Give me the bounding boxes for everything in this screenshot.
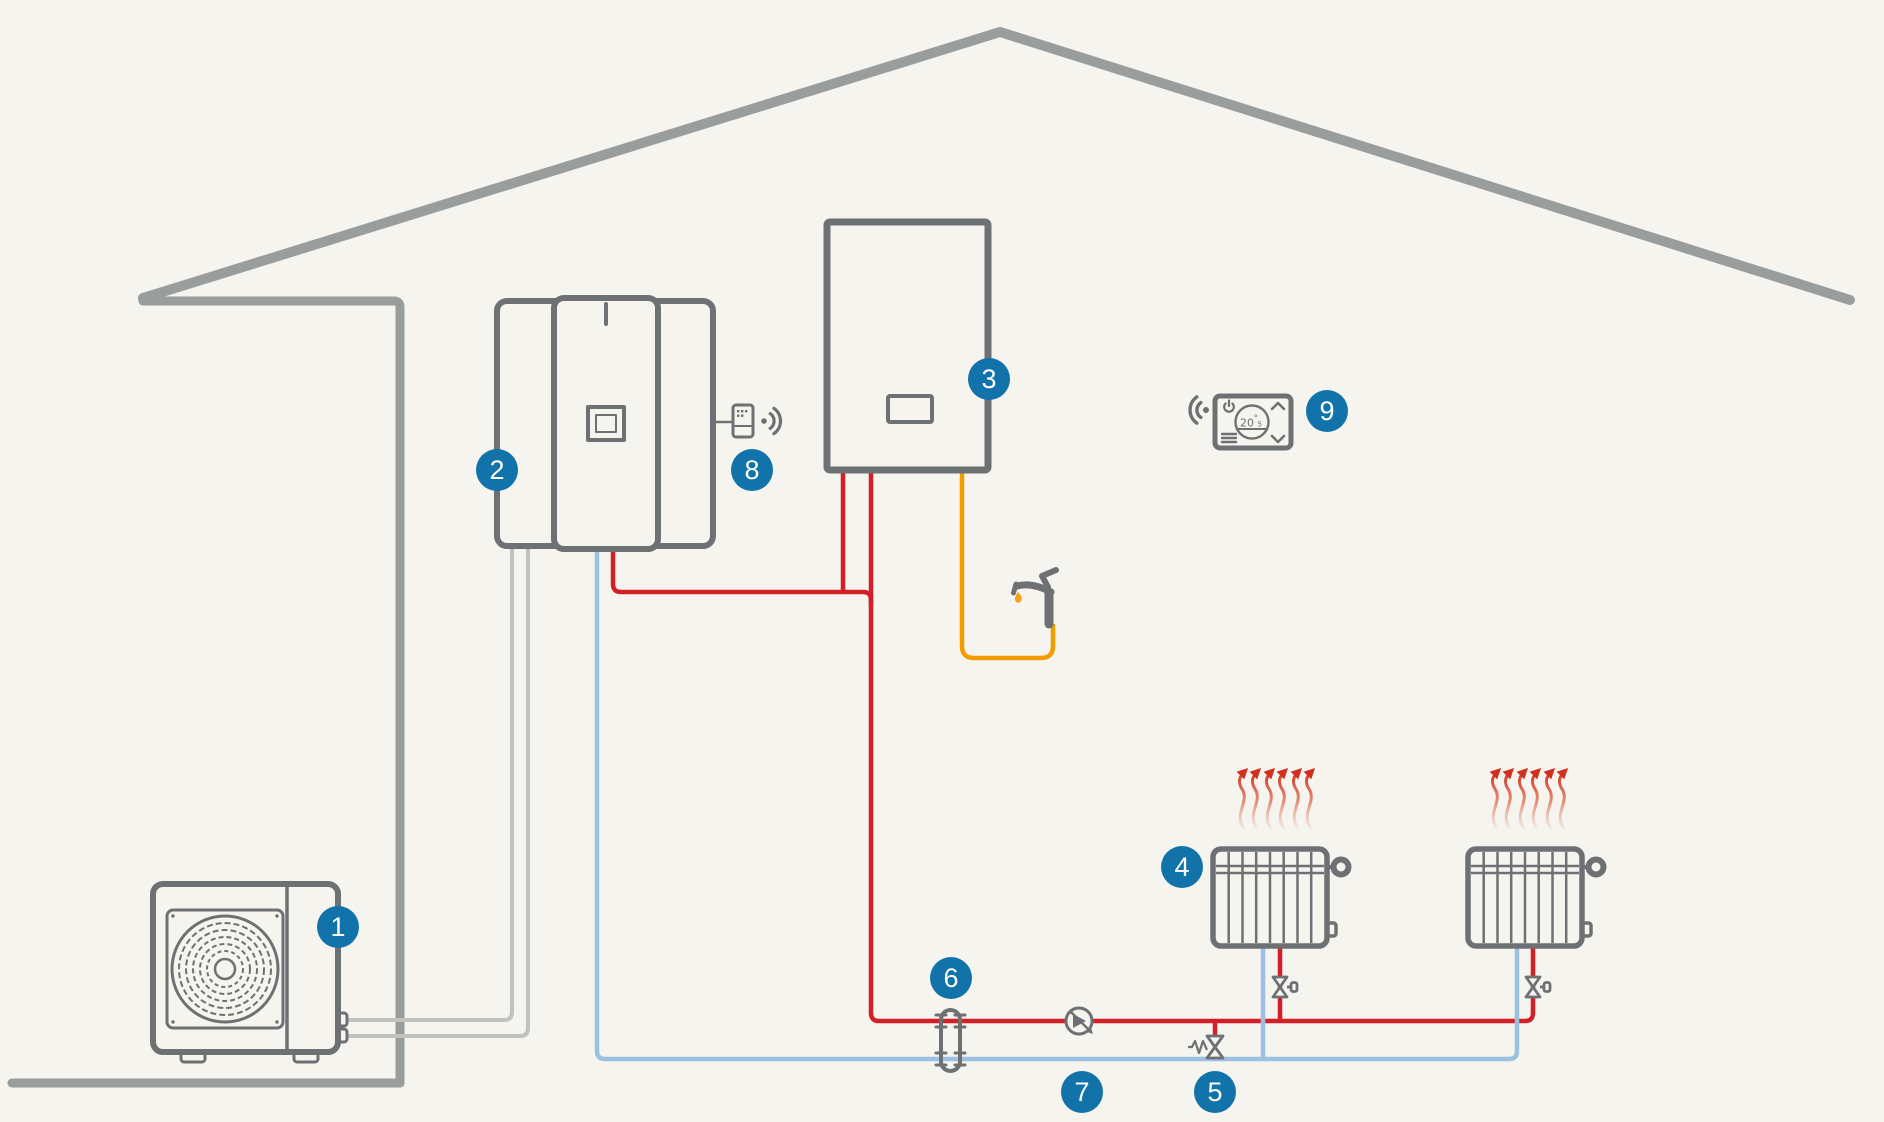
diagram-canvas: 20 ° 5 [0,0,1884,1122]
overflow-valve-icon [1188,1036,1223,1058]
hot-water-pipe [962,466,1053,658]
indoor-unit-front-panel [554,298,658,549]
heating-return-pipe [597,549,1517,1059]
wireless-module-icon [713,405,781,437]
heat-waves-icon [1239,771,1312,827]
badge-8[interactable]: 8 [731,449,773,491]
heat-waves-icon [1492,771,1565,827]
indoor-unit [497,298,713,549]
radiator-knob [1589,860,1604,875]
wifi-waves-icon [761,408,780,433]
outdoor-unit [153,884,347,1062]
radiator-valve-icon [1273,977,1297,997]
thermostat-temperature: 20 [1240,417,1254,430]
thermostat: 20 ° 5 [1190,396,1291,448]
wifi-waves-icon [1190,397,1209,423]
roof-line [143,32,1850,300]
heating-system-diagram: 20 ° 5 1 2 3 4 5 6 7 8 9 [0,0,1884,1122]
refrigerant-pipes [347,549,528,1036]
badge-4[interactable]: 4 [1161,846,1203,888]
faucet-icon [1014,570,1057,624]
radiator [1468,771,1604,946]
badge-3[interactable]: 3 [968,358,1010,400]
boiler-body [827,222,988,470]
water-drop-icon [1015,592,1022,603]
badge-1[interactable]: 1 [317,906,359,948]
boiler [827,222,988,470]
pump-icon [1066,1008,1093,1034]
badge-6[interactable]: 6 [930,957,972,999]
badge-2[interactable]: 2 [476,449,518,491]
radiator-knob [1334,860,1349,875]
badge-5[interactable]: 5 [1194,1071,1236,1113]
badge-9[interactable]: 9 [1306,390,1348,432]
radiator-valve-icon [1526,977,1550,997]
badge-7[interactable]: 7 [1061,1071,1103,1113]
radiator [1213,771,1349,946]
thermostat-temperature-decimal: 5 [1258,421,1262,429]
heating-supply-pipe [613,466,1533,1038]
